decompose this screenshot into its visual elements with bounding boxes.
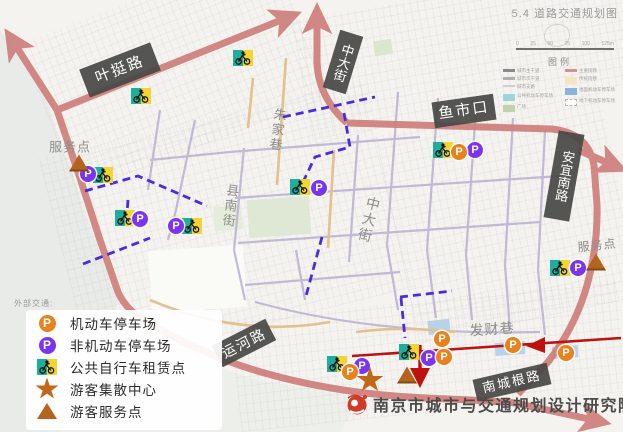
mini-legend-label: 主要街巷 [579, 68, 597, 73]
ln2-swatch [503, 77, 515, 80]
external-legend-label: 机动车停车场 [70, 313, 157, 333]
mini-legend-row: 地下机动车停车场 [565, 98, 621, 106]
scale-tick: 100 [582, 41, 590, 47]
triangle-icon [37, 403, 57, 419]
p-orange-icon: P [34, 315, 60, 332]
scale-bar: 0255075100125m [516, 41, 614, 50]
p-purple-icon: P [34, 337, 60, 354]
street-name-text: 服务点 [577, 235, 618, 256]
bike-icon [34, 359, 60, 375]
mini-legend-label: 城市主干道 [517, 68, 540, 73]
p-purple-icon: P [39, 337, 56, 354]
mini-legend-label: 传统街巷 [579, 76, 597, 81]
external-legend-item: P非机动车停车场 [26, 334, 222, 356]
bx-yellow-swatch [565, 77, 577, 84]
mini-legend-label: 公共机动车停车场 [517, 93, 553, 98]
mini-legend-label: 城市次干道 [517, 76, 540, 81]
scale-tick: 0 [516, 41, 519, 47]
star-icon [35, 378, 59, 401]
scale-tick: 25 [530, 41, 536, 47]
mini-legend-row: 城市支路 [503, 84, 559, 89]
mini-legend: 城市主干道城市次干道城市支路公共机动车停车场广场 主要街巷传统街巷地面机动车停车… [503, 68, 621, 112]
street-name-text: 县南街 [218, 183, 242, 230]
mini-legend-right-column: 主要街巷传统街巷地面机动车停车场地下机动车停车场 [565, 68, 621, 112]
footer: 南京市城市与交通规划设计研究院 [344, 391, 623, 417]
mini-legend-row: 城市主干道 [503, 68, 559, 73]
mini-legend-label: 广场 [517, 104, 526, 109]
road-name-label: 鱼市口 [431, 94, 496, 128]
external-legend-item: 游客服务点 [26, 400, 222, 422]
scale-bar-line [516, 48, 614, 50]
street-name-text: 发财巷 [469, 317, 515, 340]
mini-legend-row: 公共机动车停车场 [503, 93, 559, 101]
ln3-swatch [503, 85, 515, 87]
road-name-label: 中大街 [323, 30, 363, 94]
mini-legend-row: 广场 [503, 104, 559, 112]
external-legend-label: 游客集散中心 [70, 379, 157, 399]
scale-ticks: 0255075100125m [516, 41, 614, 47]
external-legend-item: P机动车停车场 [26, 312, 222, 334]
external-legend-label: 非机动车停车场 [70, 335, 172, 355]
mini-legend-row: 城市次干道 [503, 76, 559, 81]
external-legend-label: 公共自行车租赁点 [70, 357, 186, 377]
street-name-text: 朱家巷 [264, 106, 289, 153]
p-orange-icon: P [39, 315, 56, 332]
legend-heading: 图例 [548, 55, 572, 68]
ln1-swatch [503, 69, 515, 72]
mini-legend-row: 传统街巷 [565, 76, 621, 84]
triangle-icon [34, 403, 60, 419]
institute-name: 南京市城市与交通规划设计研究院 [373, 392, 623, 416]
street-name-text: 服务点 [49, 137, 91, 156]
scale-tick: 125m [601, 41, 614, 47]
external-legend-label: 游客服务点 [70, 401, 143, 421]
external-legend-header: 外部交通: [14, 298, 53, 309]
external-legend-item: 游客集散中心 [26, 378, 222, 400]
bx-blue-swatch [565, 88, 577, 95]
external-legend-panel: P机动车停车场P非机动车停车场公共自行车租赁点游客集散中心游客服务点 [26, 310, 222, 430]
mini-legend-label: 地下机动车停车场 [579, 98, 615, 103]
scale-tick: 75 [565, 41, 571, 47]
page-title: 5.4 道路交通规划图 [500, 5, 618, 21]
mini-legend-label: 地面机动车停车场 [579, 87, 615, 92]
mini-legend-label: 城市支路 [517, 84, 535, 89]
external-legend-item: 公共自行车租赁点 [26, 356, 222, 378]
bx-green-swatch [503, 105, 515, 112]
bx-dash-swatch [565, 99, 577, 106]
road-name-label: 叶挺路 [79, 42, 161, 97]
institute-logo-icon [344, 391, 370, 417]
bx-teal-swatch [503, 94, 515, 101]
mini-legend-left-column: 城市主干道城市次干道城市支路公共机动车停车场广场 [503, 68, 559, 112]
road-name-label: 安宜南路 [544, 130, 585, 221]
ln-pink-swatch [565, 69, 577, 72]
scale-tick: 50 [547, 41, 553, 47]
star-icon [34, 378, 60, 401]
mini-legend-row: 地面机动车停车场 [565, 87, 621, 95]
mini-legend-row: 主要街巷 [565, 68, 621, 73]
street-name-text: 中大街 [353, 194, 384, 245]
planning-map-page: PPPPPPPPPPPPPP 叶挺路中大街鱼市口安宜南路运河路南城根路朱家巷县南… [0, 0, 623, 432]
